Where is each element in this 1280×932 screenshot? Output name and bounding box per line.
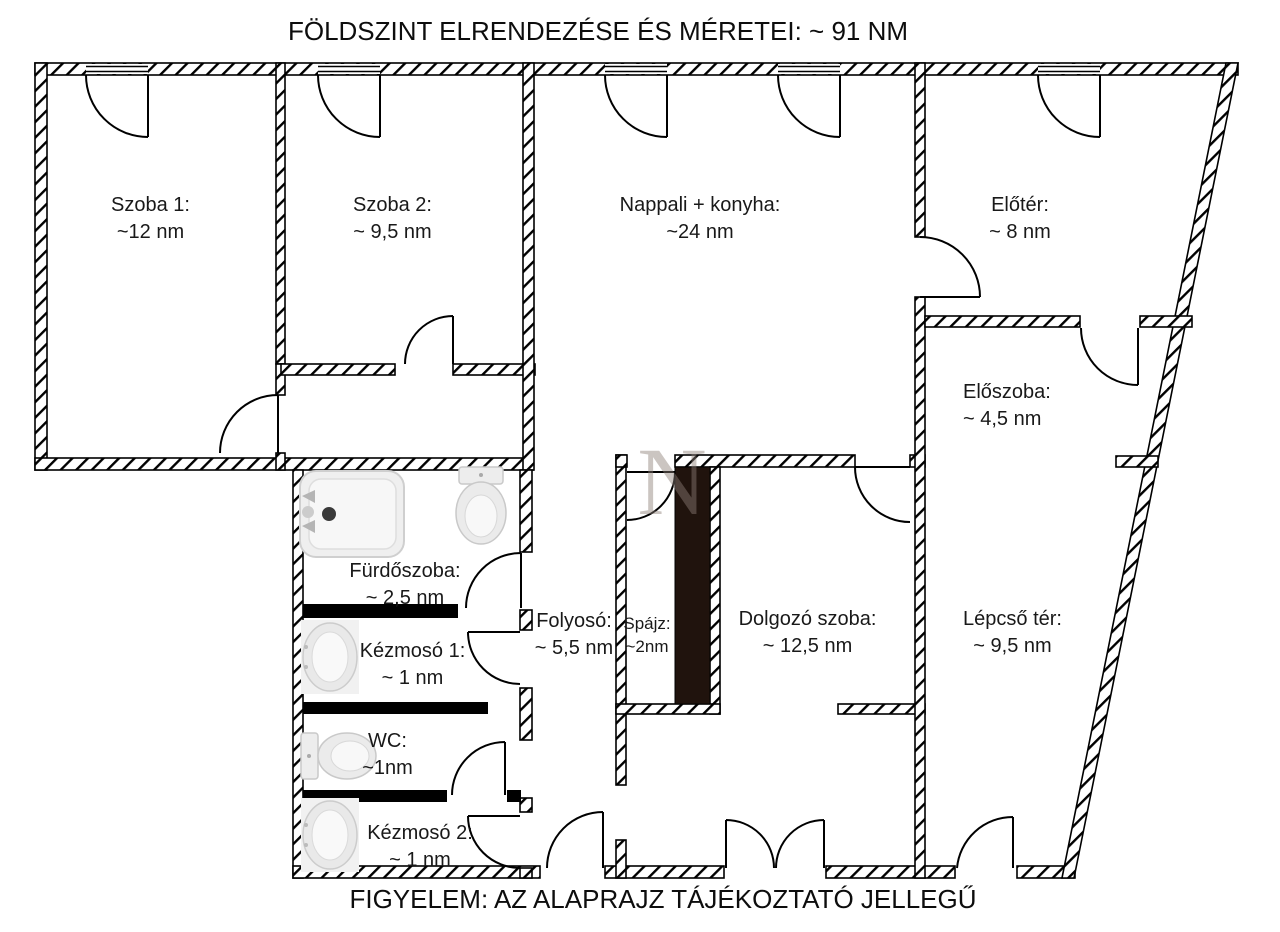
bathtub-icon <box>300 471 404 557</box>
room-name: Szoba 2: <box>290 192 495 219</box>
room-area: ~ 9,5 nm <box>920 633 1105 660</box>
room-label-folyoso: Folyosó: ~ 5,5 nm <box>518 608 630 662</box>
door-swing <box>957 817 1013 868</box>
wall-slanted <box>1062 63 1238 878</box>
wall-segment <box>520 470 532 552</box>
room-area: ~ 12,5 nm <box>700 633 915 660</box>
room-area: ~ 1 nm <box>330 847 510 874</box>
door-swing <box>726 820 774 868</box>
partition-band <box>507 790 521 802</box>
room-label-kezmoso1: Kézmosó 1: ~ 1 nm <box>325 638 500 692</box>
disclaimer-text: FIGYELEM: AZ ALAPRAJZ TÁJÉKOZTATÓ JELLEG… <box>46 884 1280 915</box>
wall-segment <box>710 467 720 714</box>
door-swing <box>547 812 603 868</box>
room-label-szoba2: Szoba 2: ~ 9,5 nm <box>290 192 495 246</box>
floor-plan: N FÖLDSZINT ELRENDEZÉSE ÉS MÉRETEI: ~ 91… <box>0 0 1280 932</box>
toilet-icon <box>456 467 506 544</box>
wall-segment <box>826 866 955 878</box>
room-label-eloter: Előtér: ~ 8 nm <box>930 192 1110 246</box>
partition-band <box>303 702 488 714</box>
room-area: ~ 5,5 nm <box>518 635 630 662</box>
wall-segment <box>1116 456 1158 467</box>
page-title: FÖLDSZINT ELRENDEZÉSE ÉS MÉRETEI: ~ 91 N… <box>0 16 1196 47</box>
door-swing <box>405 316 453 364</box>
wall-segment <box>1140 316 1192 327</box>
window <box>318 64 380 74</box>
door-swing <box>605 75 667 137</box>
door-swing <box>318 75 380 137</box>
room-name: Kézmosó 2: <box>330 820 510 847</box>
room-label-eloszoba: Előszoba: ~ 4,5 nm <box>963 379 1113 433</box>
wall-segment <box>616 455 627 467</box>
window <box>778 64 840 74</box>
room-area: ~ 4,5 nm <box>963 406 1113 433</box>
room-name: Előtér: <box>930 192 1110 219</box>
wall-segment <box>675 455 855 467</box>
door-swing <box>776 820 824 868</box>
room-label-furdoszoba: Fürdőszoba: ~ 2,5 nm <box>315 558 495 612</box>
wall-segment <box>520 868 532 878</box>
room-label-nappali: Nappali + konyha: ~24 nm <box>565 192 835 246</box>
wall-segment <box>925 316 1080 327</box>
room-label-szoba1: Szoba 1: ~12 nm <box>48 192 253 246</box>
walls <box>35 63 1238 878</box>
wall-segment <box>838 704 925 714</box>
window <box>1038 64 1100 74</box>
door-swing <box>1038 75 1100 137</box>
room-label-kezmoso2: Kézmosó 2: ~ 1 nm <box>330 820 510 874</box>
wall-segment <box>276 453 285 470</box>
wall-segment <box>616 704 720 714</box>
wall-segment <box>281 364 395 375</box>
floor-plan-drawing <box>0 0 1280 932</box>
wall-segment <box>915 63 925 237</box>
room-name: Előszoba: <box>963 379 1113 406</box>
wall-segment <box>915 297 925 878</box>
room-area: ~1nm <box>300 755 475 782</box>
room-area: ~2nm <box>619 635 675 658</box>
room-label-lepcso: Lépcső tér: ~ 9,5 nm <box>920 606 1105 660</box>
door-swing <box>855 467 910 522</box>
room-name: Szoba 1: <box>48 192 253 219</box>
wall-segment <box>35 63 47 470</box>
door-swing <box>220 395 278 453</box>
room-area: ~24 nm <box>565 219 835 246</box>
door-swing <box>1081 328 1138 385</box>
door-swing <box>627 472 675 520</box>
room-name: Kézmosó 1: <box>325 638 500 665</box>
room-area: ~ 1 nm <box>325 665 500 692</box>
room-name: Folyosó: <box>518 608 630 635</box>
room-name: Lépcső tér: <box>920 606 1105 633</box>
room-label-dolgozo: Dolgozó szoba: ~ 12,5 nm <box>700 606 915 660</box>
room-name: Spájz: <box>619 612 675 635</box>
floor-plan-page: { "title": "FÖLDSZINT ELRENDEZÉSE ÉS MÉR… <box>0 0 1280 932</box>
door-swing <box>778 75 840 137</box>
room-area: ~12 nm <box>48 219 253 246</box>
room-label-wc: WC: ~1nm <box>300 728 475 782</box>
door-swing <box>86 75 148 137</box>
wall-segment <box>520 798 532 812</box>
room-name: Nappali + konyha: <box>565 192 835 219</box>
wall-segment <box>276 63 285 364</box>
room-area: ~ 2,5 nm <box>315 585 495 612</box>
window <box>86 64 148 74</box>
room-name: Fürdőszoba: <box>315 558 495 585</box>
room-name: Dolgozó szoba: <box>700 606 915 633</box>
room-label-spajz: Spájz: ~2nm <box>619 612 675 658</box>
wall-segment <box>523 63 534 470</box>
door-swing <box>920 237 980 297</box>
room-area: ~ 8 nm <box>930 219 1110 246</box>
wall-segment <box>520 688 532 740</box>
wall-segment <box>616 840 626 878</box>
room-area: ~ 9,5 nm <box>290 219 495 246</box>
window <box>605 64 667 74</box>
room-name: WC: <box>300 728 475 755</box>
pantry-shelf-block <box>675 467 710 704</box>
